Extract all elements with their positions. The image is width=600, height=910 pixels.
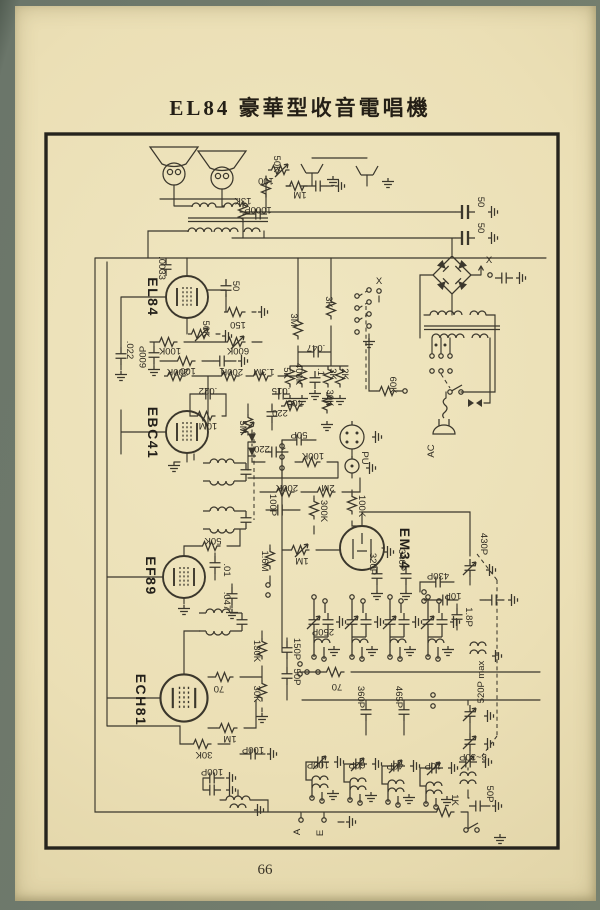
value-label: 50P	[291, 429, 308, 440]
tube-label: ECH81	[133, 674, 149, 727]
tube-label: EL84	[145, 277, 161, 316]
value-label: 10M	[199, 420, 218, 431]
tube-label: EF89	[143, 556, 159, 595]
power-rails-filter	[455, 205, 526, 284]
value-label: 100	[258, 175, 274, 186]
value-label: 1M	[295, 555, 308, 566]
value-label: 100K	[158, 345, 181, 356]
rectifier-bridge	[433, 256, 471, 294]
value-label: 100P	[307, 759, 329, 770]
value-label: .015	[272, 385, 291, 396]
value-label: 220	[272, 407, 288, 418]
value-label: 1000P	[244, 204, 271, 215]
value-label: .022	[199, 385, 218, 396]
value-label: 130K	[251, 640, 262, 663]
value-label: 1K	[449, 794, 460, 806]
value-label: 50K	[271, 156, 282, 174]
speakers	[150, 147, 246, 189]
value-label: 50K	[204, 535, 222, 546]
value-label: 50P	[484, 786, 495, 803]
value-label: 1.3M	[253, 366, 274, 377]
value-label: 30K	[195, 749, 213, 760]
value-label: 40P	[387, 760, 404, 771]
value-label: 100P	[242, 744, 264, 755]
value-label: A	[292, 828, 303, 835]
value-label: 360P	[355, 686, 366, 708]
value-label: 70	[214, 683, 225, 694]
value-label: 340P	[396, 549, 407, 571]
value-label: 1M	[293, 189, 306, 200]
value-label: 10P	[425, 760, 442, 771]
value-label: 3M	[288, 313, 299, 326]
value-label: 465P	[393, 686, 404, 708]
value-label: 30K	[324, 390, 335, 408]
value-label: 60P	[349, 759, 366, 770]
value-label: 1M	[223, 733, 236, 744]
tube-ef89	[163, 507, 310, 635]
value-label: 50P	[291, 669, 302, 686]
tuning-capacitors	[422, 559, 518, 751]
value-label: 2K	[339, 368, 350, 380]
value-label: 430P	[427, 570, 449, 581]
value-label: 100P	[267, 494, 278, 516]
value-label: 430P	[478, 533, 489, 555]
value-label: 1.6M	[259, 550, 270, 571]
value-label: .047	[307, 342, 326, 353]
value-label: 70	[332, 681, 343, 692]
value-label: 200K	[275, 482, 298, 493]
schematic-diagram: EL84EBC41EF89ECH81EM3450K10013K1000P1M.0…	[0, 0, 600, 910]
value-label: PU	[359, 451, 370, 464]
value-label: 3K	[323, 296, 334, 308]
value-label: X	[376, 276, 383, 287]
value-label: AC	[426, 444, 437, 457]
ac-plug	[433, 398, 455, 434]
mechanical-gang-links	[254, 291, 497, 756]
value-label: 5M	[237, 420, 248, 433]
value-label: 400K	[293, 363, 304, 386]
tube-ech81	[160, 638, 302, 816]
value-label: 400	[287, 397, 303, 408]
value-label: E	[315, 830, 326, 836]
value-label: 220	[254, 443, 270, 454]
value-label: 3~30P	[459, 751, 487, 762]
value-label: .01	[221, 563, 232, 576]
value-label: .1	[315, 368, 326, 376]
value-label: 150	[230, 319, 246, 330]
value-label: .0033	[156, 256, 167, 280]
antenna-earth-terminals	[299, 816, 356, 828]
voltage-selector	[430, 354, 452, 373]
value-label: .022	[124, 341, 135, 360]
value-label: 100P	[201, 766, 223, 777]
value-label: 50	[475, 223, 486, 234]
band-switch-osc-coils	[306, 756, 506, 844]
value-label: 50K	[200, 321, 211, 339]
power-transformer	[424, 311, 500, 347]
band-switch-rf-coils	[305, 595, 460, 721]
page-number: 66	[0, 862, 530, 879]
value-label: 100K	[356, 495, 367, 518]
schematic-components	[115, 147, 526, 844]
value-label: 200K	[220, 366, 243, 377]
value-label: 600K	[226, 345, 249, 356]
value-label: 200K	[166, 366, 189, 377]
value-label: 600P	[138, 346, 149, 368]
value-label: 250P	[312, 626, 334, 637]
value-label: 50	[475, 197, 486, 208]
value-label: .047	[221, 592, 232, 611]
value-label: 520P max	[476, 660, 487, 703]
value-label: 50	[230, 281, 241, 292]
value-label: 150P	[291, 638, 302, 660]
power-switch	[448, 385, 482, 407]
value-label: 300K	[318, 500, 329, 523]
value-label: 100K	[301, 450, 324, 461]
value-label: X	[486, 255, 493, 266]
value-label: 2M	[321, 482, 334, 493]
value-label: 60K	[387, 377, 398, 395]
value-label: 30K	[251, 686, 262, 704]
value-label: 3K	[327, 368, 338, 380]
value-label: 320P	[367, 553, 378, 575]
value-label: 5K	[281, 367, 292, 379]
tube-label: EBC41	[145, 407, 161, 460]
value-label: 10P	[445, 590, 462, 601]
diagram-border	[46, 134, 558, 848]
value-label: 1.8P	[463, 607, 474, 627]
